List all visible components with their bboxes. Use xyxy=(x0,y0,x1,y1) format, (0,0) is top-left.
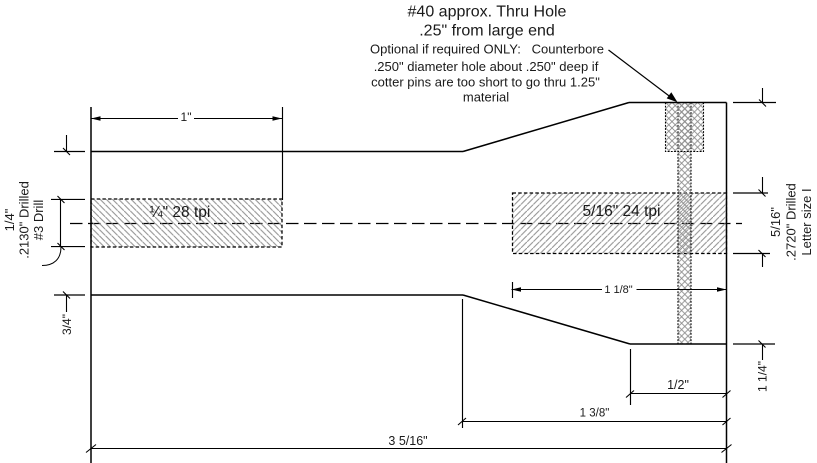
svg-text:.250" diameter hole about .250: .250" diameter hole about .250" deep if xyxy=(374,59,599,74)
svg-text:5/16" 24 tpi: 5/16" 24 tpi xyxy=(583,203,661,220)
svg-text:3 5/16": 3 5/16" xyxy=(388,434,427,448)
svg-text:3/4": 3/4" xyxy=(60,314,74,335)
svg-text:.2720" Drilled: .2720" Drilled xyxy=(784,183,799,261)
svg-text:.25" from large end: .25" from large end xyxy=(419,23,555,40)
svg-text:1/4": 1/4" xyxy=(2,208,17,231)
svg-text:material: material xyxy=(463,90,509,105)
svg-text:5/16": 5/16" xyxy=(768,207,783,237)
svg-text:cotter pins are too short to g: cotter pins are too short to go thru 1.2… xyxy=(371,75,600,90)
svg-text:1 1/4": 1 1/4" xyxy=(755,361,769,392)
svg-text:Letter size I: Letter size I xyxy=(799,188,814,255)
svg-text:1 1/8": 1 1/8" xyxy=(604,284,632,296)
svg-text:1/2": 1/2" xyxy=(667,378,689,392)
svg-text:1 3/8": 1 3/8" xyxy=(580,408,610,420)
svg-text:1": 1" xyxy=(181,110,192,124)
svg-text:#3 Drill: #3 Drill xyxy=(31,200,46,241)
svg-text:Optional if required ONLY: C: Optional if required ONLY: Counterbore xyxy=(370,42,604,57)
svg-text:.2130" Drilled: .2130" Drilled xyxy=(17,181,32,259)
svg-text:#40 approx. Thru Hole: #40 approx. Thru Hole xyxy=(408,4,567,21)
svg-text:¼" 28 tpi: ¼" 28 tpi xyxy=(150,204,211,221)
